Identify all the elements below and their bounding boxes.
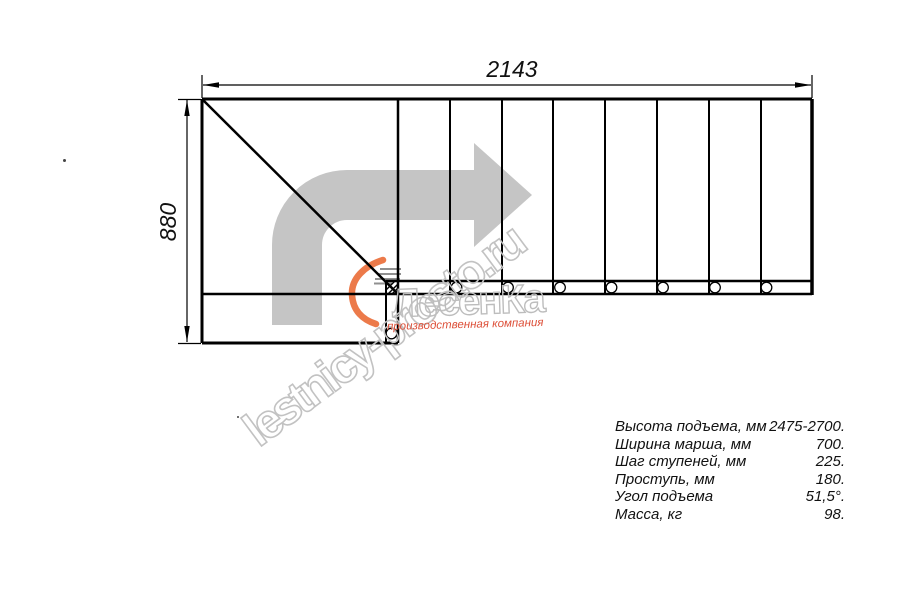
spec-label: Ширина марша, мм [615,436,751,454]
spec-value: 98. [824,506,845,524]
spec-row: Шаг ступеней, мм 225. [615,453,845,471]
spec-label: Проступь, мм [615,471,715,489]
artifact-dot [63,159,66,162]
dimension-line-height [178,100,201,344]
stair-plan-page: 2143 880 lestnicy-prosto.ru ЛесенКа прои… [0,0,900,600]
spec-row: Угол подъема 51,5°. [615,488,845,506]
spec-row: Проступь, мм 180. [615,471,845,489]
spec-row: Масса, кг 98. [615,506,845,524]
dimension-label-width: 2143 [432,56,592,83]
spec-value: 2475-2700. [769,418,845,436]
spec-value: 700. [816,436,845,454]
specs-table: Высота подъема, мм 2475-2700. Ширина мар… [615,418,845,523]
spec-label: Шаг ступеней, мм [615,453,746,471]
spec-label: Угол подъема [615,488,713,506]
spec-value: 180. [816,471,845,489]
direction-arrow-icon [297,143,532,325]
spec-row: Ширина марша, мм 700. [615,436,845,454]
spec-value: 225. [816,453,845,471]
spec-row: Высота подъема, мм 2475-2700. [615,418,845,436]
dimension-label-height: 880 [155,186,179,258]
spec-label: Высота подъема, мм [615,418,767,436]
spec-label: Масса, кг [615,506,682,524]
spec-value: 51,5°. [806,488,845,506]
artifact-dot [237,416,239,418]
